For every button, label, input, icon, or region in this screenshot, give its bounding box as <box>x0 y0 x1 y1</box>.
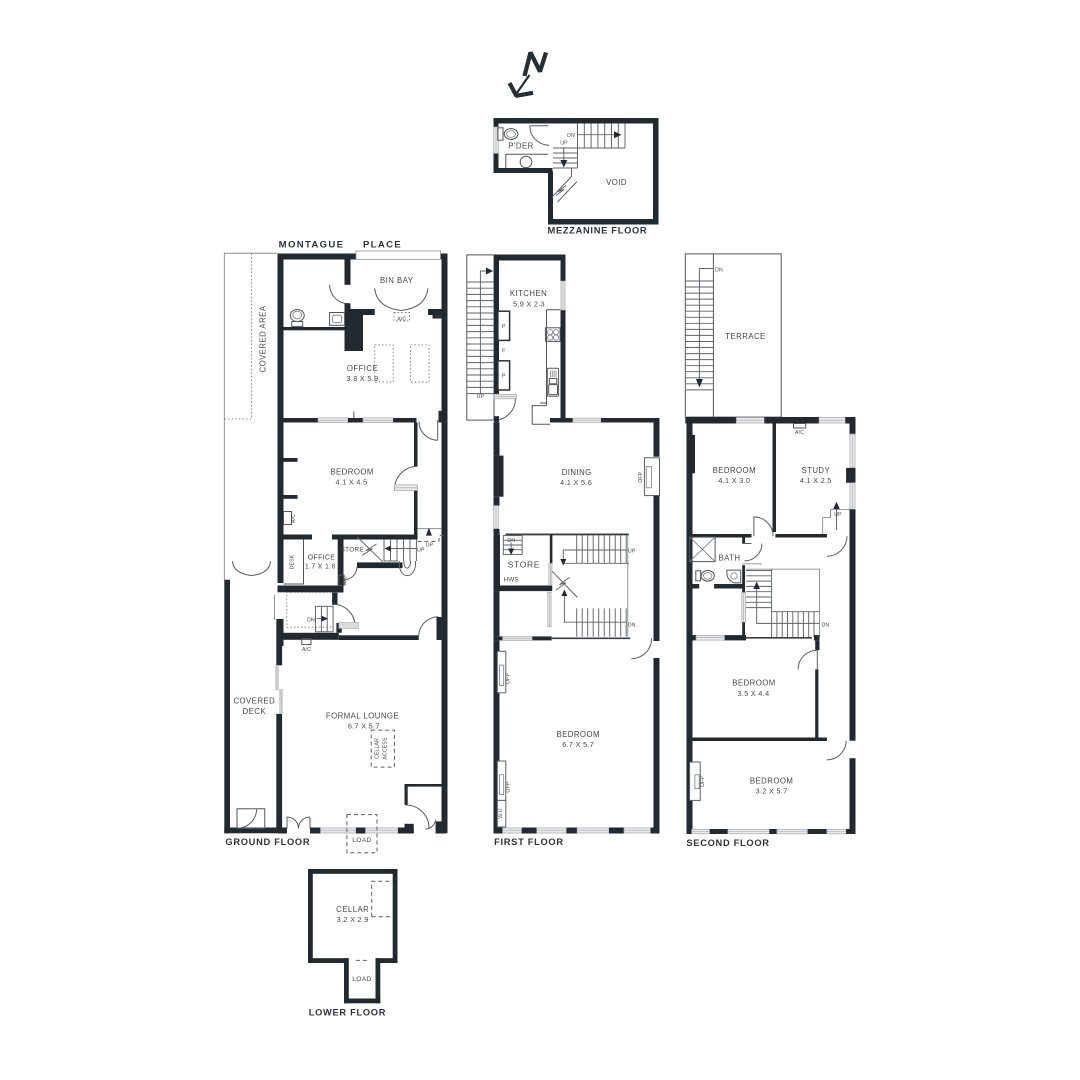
svg-text:COVERED: COVERED <box>233 697 275 706</box>
svg-text:UP: UP <box>477 394 485 400</box>
svg-text:3.2 X 2.9: 3.2 X 2.9 <box>337 915 369 924</box>
svg-text:BEDROOM: BEDROOM <box>330 468 373 477</box>
svg-text:UP: UP <box>560 141 568 147</box>
svg-text:4.1 X 3.0: 4.1 X 3.0 <box>718 476 750 485</box>
svg-text:DN: DN <box>822 623 830 629</box>
svg-text:LOWER FLOOR: LOWER FLOOR <box>309 1008 386 1018</box>
svg-text:KITCHEN: KITCHEN <box>510 289 547 298</box>
svg-text:LOAD: LOAD <box>352 976 372 983</box>
svg-text:TERRACE: TERRACE <box>725 332 765 341</box>
svg-text:3.5 X 4.4: 3.5 X 4.4 <box>738 689 770 698</box>
svg-text:GM: GM <box>435 315 441 319</box>
svg-text:6.7 X 5.7: 6.7 X 5.7 <box>348 721 380 730</box>
svg-text:UP: UP <box>426 543 434 549</box>
svg-text:BEDROOM: BEDROOM <box>556 730 599 739</box>
svg-text:MONTAGUE: MONTAGUE <box>279 240 345 251</box>
svg-text:ACCESS: ACCESS <box>383 737 389 760</box>
svg-text:OFFICE: OFFICE <box>347 364 378 373</box>
svg-text:BEDROOM: BEDROOM <box>750 776 793 785</box>
svg-text:STUDY: STUDY <box>801 466 830 475</box>
svg-text:P'DER: P'DER <box>508 142 533 151</box>
svg-text:1.7 X 1.8: 1.7 X 1.8 <box>305 564 336 571</box>
svg-text:A/C: A/C <box>342 576 348 585</box>
svg-text:FORMAL LOUNGE: FORMAL LOUNGE <box>326 712 399 721</box>
svg-text:A/C: A/C <box>795 430 804 436</box>
svg-text:3.2 X 5.7: 3.2 X 5.7 <box>756 786 788 795</box>
svg-text:OFFICE: OFFICE <box>308 555 335 562</box>
svg-text:UP: UP <box>628 549 636 555</box>
svg-text:DECK: DECK <box>243 707 267 716</box>
svg-text:BEDROOM: BEDROOM <box>713 466 756 475</box>
svg-text:A/C: A/C <box>302 647 311 653</box>
svg-text:UP: UP <box>417 548 425 554</box>
svg-text:4.1 X 2.5: 4.1 X 2.5 <box>800 476 832 485</box>
svg-text:DESK: DESK <box>290 554 296 569</box>
svg-text:VOID: VOID <box>606 178 627 187</box>
svg-text:BIN BAY: BIN BAY <box>380 276 414 285</box>
svg-text:4.1 X 5.6: 4.1 X 5.6 <box>560 478 592 487</box>
svg-text:OFP: OFP <box>505 781 511 793</box>
svg-text:5.9 X 2.3: 5.9 X 2.3 <box>513 300 545 309</box>
svg-text:PLACE: PLACE <box>363 240 402 251</box>
svg-text:LOAD: LOAD <box>352 837 372 844</box>
svg-text:W.U: W.U <box>498 808 504 818</box>
svg-text:OFP: OFP <box>638 471 644 483</box>
svg-text:A/C: A/C <box>291 514 297 523</box>
svg-text:A/C: A/C <box>397 316 406 322</box>
svg-text:P: P <box>502 324 506 330</box>
svg-text:UP: UP <box>834 512 842 518</box>
svg-text:DINING: DINING <box>562 468 592 477</box>
svg-text:STORE: STORE <box>341 547 364 554</box>
svg-text:6.7 X 5.7: 6.7 X 5.7 <box>562 740 594 749</box>
svg-text:FIRST FLOOR: FIRST FLOOR <box>494 837 564 847</box>
svg-text:CELLAR: CELLAR <box>336 905 369 914</box>
svg-text:P: P <box>502 374 506 380</box>
svg-text:GROUND FLOOR: GROUND FLOOR <box>225 837 310 847</box>
svg-text:MEZZANINE FLOOR: MEZZANINE FLOOR <box>548 226 648 236</box>
svg-text:SECOND FLOOR: SECOND FLOOR <box>686 838 769 848</box>
svg-text:F: F <box>502 349 505 355</box>
svg-text:DN: DN <box>628 623 636 629</box>
svg-text:DN: DN <box>715 268 723 274</box>
svg-text:3.8 X 5.9: 3.8 X 5.9 <box>347 374 379 383</box>
svg-text:DN: DN <box>307 617 315 623</box>
svg-text:CELLAR: CELLAR <box>375 738 381 759</box>
svg-text:COVERED AREA: COVERED AREA <box>259 305 268 372</box>
svg-text:STORE: STORE <box>508 559 540 569</box>
svg-text:HWS: HWS <box>504 577 519 584</box>
svg-text:OFP: OFP <box>700 776 706 788</box>
svg-text:BATH: BATH <box>718 554 740 563</box>
svg-text:4.1 X 4.5: 4.1 X 4.5 <box>336 477 368 486</box>
svg-text:OFP: OFP <box>505 673 511 685</box>
svg-text:BEDROOM: BEDROOM <box>732 678 775 687</box>
svg-text:DN: DN <box>567 133 575 139</box>
